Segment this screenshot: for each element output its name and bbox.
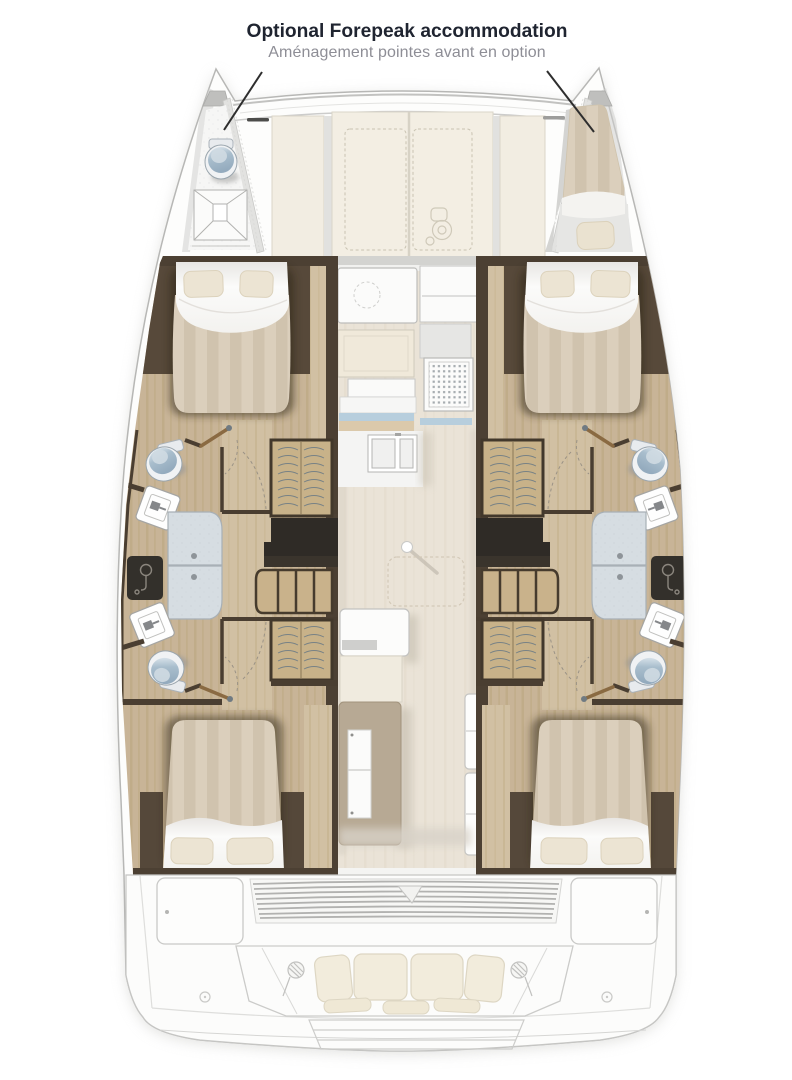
svg-text:Optional Forepeak accommodatio: Optional Forepeak accommodation [247,21,568,42]
svg-text:Aménagement pointes avant en o: Aménagement pointes avant en option [268,44,545,61]
